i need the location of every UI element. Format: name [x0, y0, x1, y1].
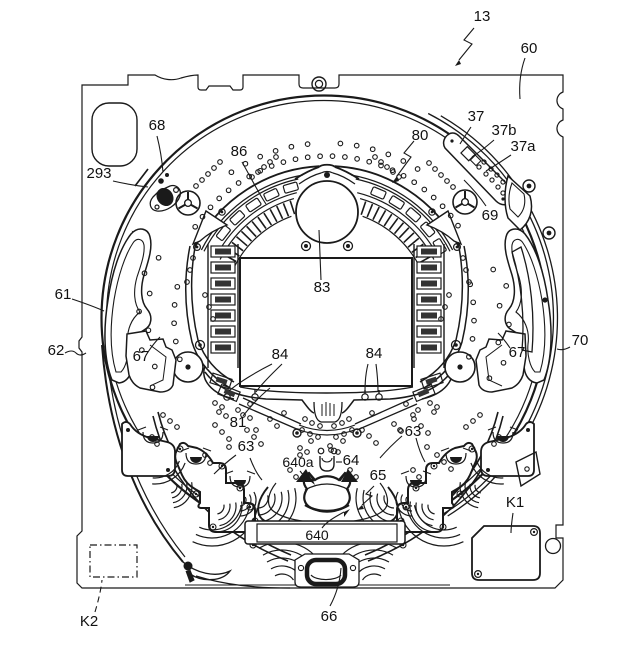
svg-text:68: 68: [149, 117, 166, 134]
svg-text:60: 60: [521, 40, 538, 57]
svg-text:62: 62: [48, 342, 65, 359]
svg-text:63: 63: [405, 423, 422, 440]
svg-text:67: 67: [509, 344, 526, 361]
svg-text:70: 70: [572, 332, 589, 349]
svg-text:37b: 37b: [491, 122, 516, 139]
svg-text:61: 61: [55, 286, 72, 303]
svg-text:65: 65: [370, 467, 387, 484]
svg-text:K1: K1: [506, 494, 524, 511]
svg-text:K2: K2: [80, 613, 98, 630]
svg-text:64: 64: [343, 452, 360, 469]
svg-text:640a: 640a: [282, 454, 313, 470]
svg-text:37a: 37a: [510, 138, 536, 155]
svg-text:86: 86: [231, 143, 248, 160]
svg-text:37: 37: [468, 108, 485, 125]
svg-text:84: 84: [366, 345, 383, 362]
svg-text:293: 293: [86, 165, 111, 182]
svg-text:66: 66: [321, 608, 338, 625]
svg-text:13: 13: [474, 8, 491, 25]
svg-text:640: 640: [305, 527, 329, 543]
svg-text:69: 69: [482, 207, 499, 224]
svg-text:84: 84: [272, 346, 289, 363]
svg-text:67: 67: [133, 348, 150, 365]
svg-text:81: 81: [230, 414, 247, 431]
svg-text:63: 63: [238, 438, 255, 455]
svg-text:83: 83: [314, 279, 331, 296]
